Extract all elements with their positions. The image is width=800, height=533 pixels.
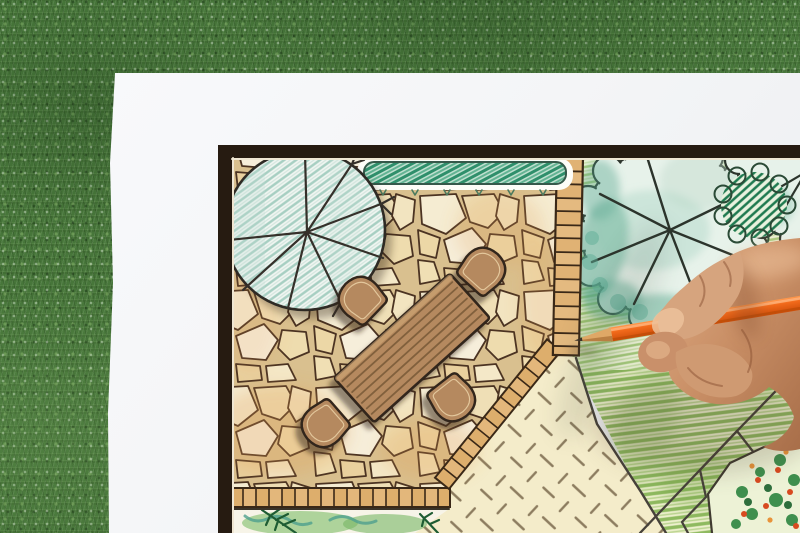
hedge [357, 158, 573, 195]
planting-bed-bottom [232, 509, 449, 533]
garden-plan-drawing [0, 0, 800, 533]
brick-band-bottom [230, 488, 450, 507]
scene [0, 0, 800, 533]
